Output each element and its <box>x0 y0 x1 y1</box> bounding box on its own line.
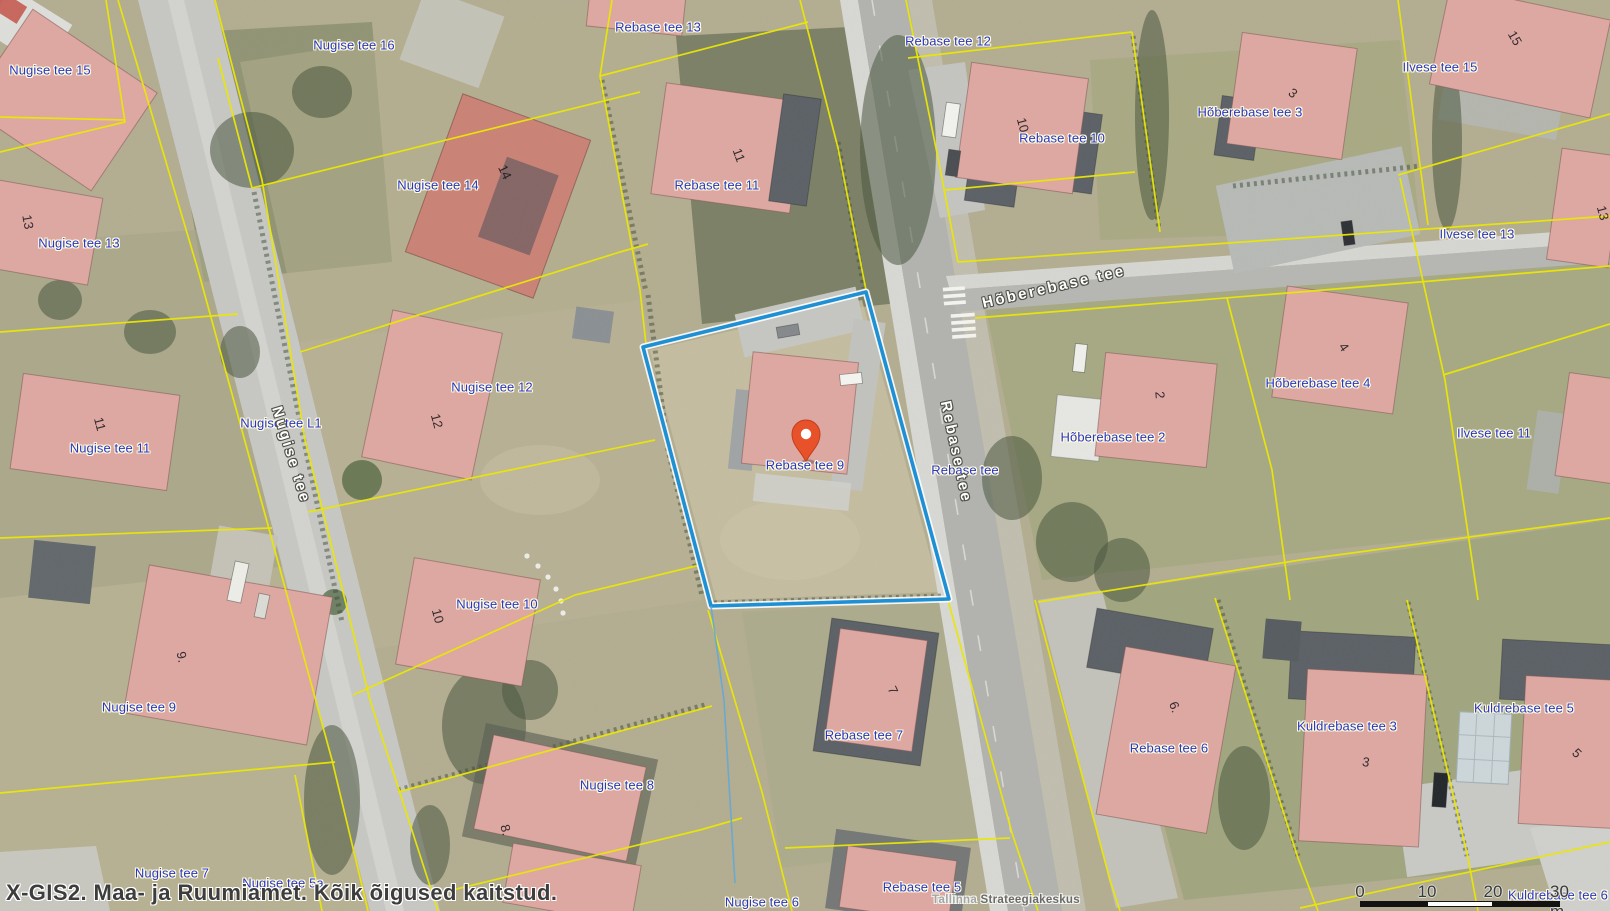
scale-segment <box>1360 901 1427 907</box>
watermark-center-light: Tallinna <box>932 894 977 906</box>
scale-tick-label: 0 <box>1355 882 1364 902</box>
scale-segment <box>1493 901 1560 907</box>
aerial-imagery: .pk{fill:#dfa8a2;stroke:rgba(128,86,84,.… <box>0 0 1610 911</box>
watermark-center: Tallinna Strateegiakeskus <box>932 894 1080 906</box>
scale-bar-segments <box>1360 901 1560 907</box>
scale-segment <box>1427 901 1494 907</box>
scale-bar: 0102030 m <box>1340 880 1580 910</box>
map-viewport[interactable]: .pk{fill:#dfa8a2;stroke:rgba(128,86,84,.… <box>0 0 1610 911</box>
watermark-attribution: X-GIS2. Maa- ja Ruumiamet. Kõik õigused … <box>6 880 557 906</box>
scale-tick-label: 20 <box>1484 882 1503 902</box>
watermark-center-dark: Strateegiakeskus <box>981 894 1080 906</box>
scale-tick-label: 10 <box>1418 882 1437 902</box>
